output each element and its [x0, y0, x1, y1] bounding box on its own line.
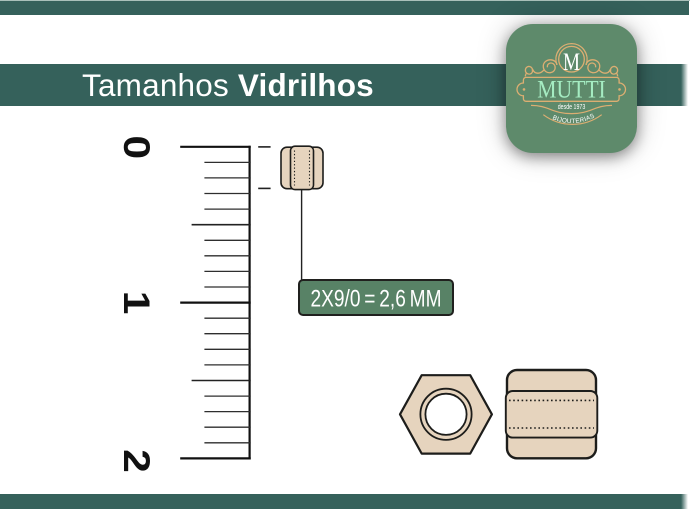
svg-text:0: 0: [116, 135, 157, 159]
svg-text:BIJOUTERIAS: BIJOUTERIAS: [551, 113, 596, 126]
svg-text:1: 1: [116, 291, 157, 315]
svg-text:2: 2: [116, 449, 157, 473]
svg-text:MUTTI: MUTTI: [537, 75, 606, 104]
svg-text:2X9/0 = 2,6 MM: 2X9/0 = 2,6 MM: [310, 285, 441, 312]
svg-text:desde 1973: desde 1973: [557, 102, 585, 111]
svg-text:M: M: [563, 47, 580, 76]
